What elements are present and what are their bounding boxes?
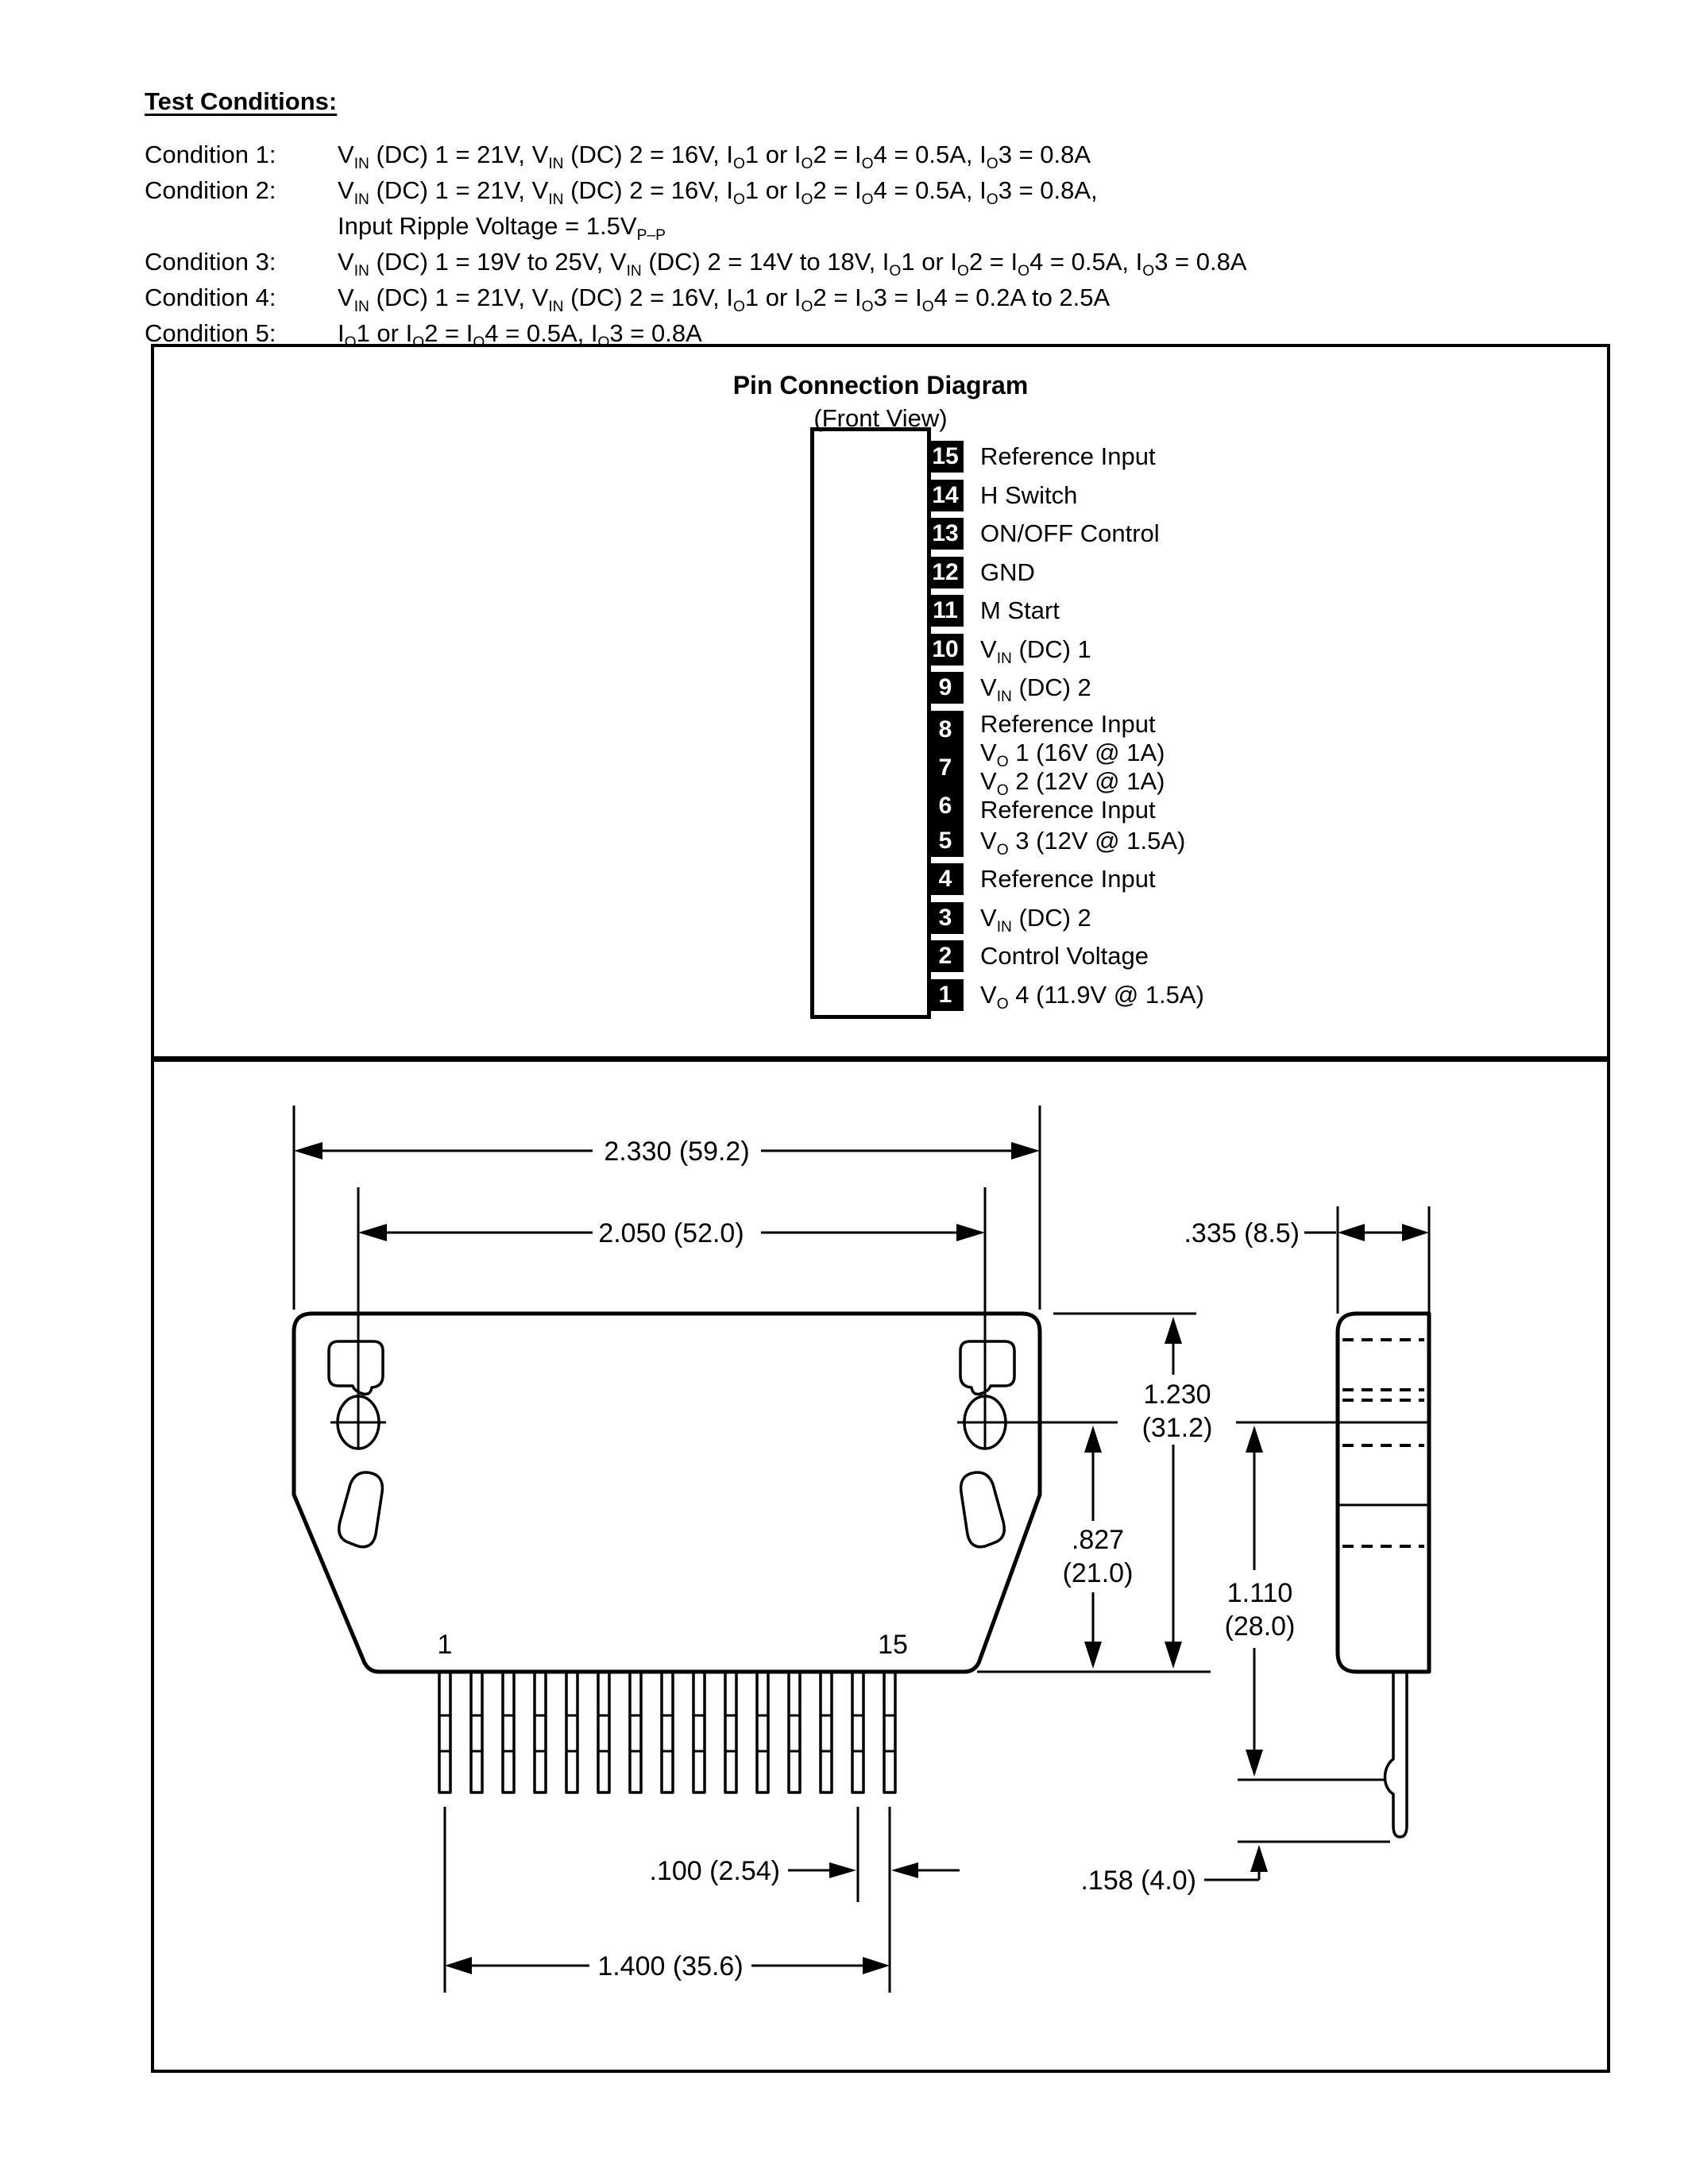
arrowhead-right xyxy=(956,1224,985,1241)
dim-hole-to-pin-end-mm: (28.0) xyxy=(1225,1611,1296,1642)
package-dimensions-panel: 1 15 xyxy=(151,1059,1610,2073)
condition-text-line: VIN (DC) 1 = 21V, VIN (DC) 2 = 16V, IO1 … xyxy=(338,280,1574,315)
dim-overall-width: 2.330 (59.2) xyxy=(604,1136,749,1167)
front-view-pin xyxy=(439,1672,450,1792)
pin-number: 6 xyxy=(939,793,952,820)
pin-label: GND xyxy=(980,558,1035,588)
pin-label: Control Voltage xyxy=(980,941,1149,971)
test-condition-row: Condition 4: VIN (DC) 1 = 21V, VIN (DC) … xyxy=(145,280,1574,315)
test-condition-row: Condition 2: VIN (DC) 1 = 21V, VIN (DC) … xyxy=(145,172,1574,244)
pin-number-box: 14 xyxy=(927,480,964,511)
pin-label: VIN (DC) 2 xyxy=(980,673,1091,703)
pin-diagram-title: Pin Connection Diagram xyxy=(154,371,1607,400)
pin-number-box: 11 xyxy=(927,595,964,627)
front-view-pin xyxy=(757,1672,768,1792)
pin-number: 2 xyxy=(939,943,952,970)
arrowhead-down xyxy=(1165,1642,1182,1669)
front-view-pin xyxy=(852,1672,863,1792)
pin-label: Reference Input xyxy=(980,795,1156,825)
package-outline xyxy=(810,427,931,1019)
pin-number-box: 7 xyxy=(927,749,964,787)
front-view-pin15-number: 15 xyxy=(878,1630,908,1660)
front-view-pin xyxy=(662,1672,673,1792)
left-top-slot xyxy=(329,1341,383,1394)
dimension-drawing: 1 15 xyxy=(154,1062,1607,2070)
test-condition-row: Condition 1: VIN (DC) 1 = 21V, VIN (DC) … xyxy=(145,137,1574,172)
pin-number: 1 xyxy=(939,982,952,1009)
arrowhead-down xyxy=(1246,1750,1263,1777)
arrowhead-left xyxy=(1338,1224,1365,1241)
pin-label: VO 2 (12V @ 1A) xyxy=(980,766,1165,797)
right-top-slot xyxy=(960,1341,1014,1394)
condition-label: Condition 4: xyxy=(145,280,338,315)
right-lower-slot xyxy=(961,1472,1005,1547)
pin-connection-diagram-panel: Pin Connection Diagram (Front View) 15 R… xyxy=(151,344,1610,1059)
front-view-pin xyxy=(821,1672,832,1792)
condition-text-line: VIN (DC) 1 = 19V to 25V, VIN (DC) 2 = 14… xyxy=(338,244,1574,280)
pin-label: VO 3 (12V @ 1.5A) xyxy=(980,826,1185,856)
pin-number-box: 12 xyxy=(927,557,964,588)
pin-label: Reference Input xyxy=(980,442,1156,472)
arrowhead-up xyxy=(1246,1426,1263,1453)
front-view-pin xyxy=(884,1672,895,1792)
pin-label: VIN (DC) 1 xyxy=(980,635,1091,665)
front-view-pin1-number: 1 xyxy=(438,1630,453,1660)
front-view-pin xyxy=(566,1672,577,1792)
dim-hole-to-pin-end-in: 1.110 xyxy=(1227,1578,1293,1608)
pin-label: Reference Input xyxy=(980,864,1156,894)
dim-hole-to-base-in: .827 xyxy=(1072,1525,1124,1555)
pin-number: 13 xyxy=(932,520,958,547)
left-lower-slot xyxy=(339,1472,383,1547)
front-view-pin-comb xyxy=(439,1672,895,1792)
pin-number: 4 xyxy=(939,866,952,893)
dim-pin-pitch: .100 (2.54) xyxy=(650,1856,780,1886)
front-view-pin xyxy=(598,1672,609,1792)
pin-number-box: 1 xyxy=(927,979,964,1011)
pin-label: ON/OFF Control xyxy=(980,519,1160,549)
pin-number: 10 xyxy=(932,636,958,663)
test-conditions-title: Test Conditions: xyxy=(145,87,1574,116)
pin-number: 15 xyxy=(932,443,958,470)
pin-label: VO 1 (16V @ 1A) xyxy=(980,738,1165,768)
pin-number-box: 13 xyxy=(927,518,964,550)
condition-text: VIN (DC) 1 = 21V, VIN (DC) 2 = 16V, IO1 … xyxy=(338,280,1574,315)
side-view-pin xyxy=(1385,1672,1408,1837)
pin-number-box: 5 xyxy=(927,825,964,857)
pin-number-box: 3 xyxy=(927,902,964,934)
front-view-pin xyxy=(630,1672,641,1792)
arrowhead-left xyxy=(445,1957,472,1974)
test-conditions-list: Condition 1: VIN (DC) 1 = 21V, VIN (DC) … xyxy=(145,137,1574,351)
pin-label: Reference Input xyxy=(980,709,1156,739)
pin-number: 5 xyxy=(939,828,952,855)
package-front-outline xyxy=(294,1314,1040,1672)
condition-label: Condition 1: xyxy=(145,137,338,172)
pin-number: 12 xyxy=(932,559,958,586)
arrowhead-up xyxy=(1165,1317,1182,1344)
pin-number-box: 9 xyxy=(927,672,964,704)
front-view-pin xyxy=(535,1672,546,1792)
condition-label: Condition 2: xyxy=(145,172,338,244)
package-side-outline xyxy=(1338,1314,1429,1672)
condition-text-line: VIN (DC) 1 = 21V, VIN (DC) 2 = 16V, IO1 … xyxy=(338,172,1574,208)
pin-label: H Switch xyxy=(980,480,1077,511)
dim-pin-tip-length: .158 (4.0) xyxy=(1080,1866,1196,1896)
condition-label: Condition 3: xyxy=(145,244,338,280)
pin-number: 3 xyxy=(939,905,952,932)
arrowhead-up xyxy=(1084,1426,1102,1453)
pin-number-box: 10 xyxy=(927,634,964,666)
arrowhead-left xyxy=(358,1224,387,1241)
condition-text: VIN (DC) 1 = 21V, VIN (DC) 2 = 16V, IO1 … xyxy=(338,172,1574,244)
arrowhead-right xyxy=(1402,1224,1429,1241)
arrowhead-right xyxy=(829,1862,856,1878)
pin-number: 14 xyxy=(932,482,958,509)
arrowhead-left xyxy=(891,1862,918,1878)
front-view-pin xyxy=(725,1672,736,1792)
pin-number-box: 15 xyxy=(927,441,964,473)
dim-depth: .335 (8.5) xyxy=(1184,1218,1300,1248)
pin-number-box: 2 xyxy=(927,940,964,972)
pin-label: M Start xyxy=(980,596,1060,626)
pin-number-box: 6 xyxy=(927,787,964,825)
condition-text: VIN (DC) 1 = 21V, VIN (DC) 2 = 16V, IO1 … xyxy=(338,137,1574,172)
condition-text: VIN (DC) 1 = 19V to 25V, VIN (DC) 2 = 14… xyxy=(338,244,1574,280)
dim-overall-height-in: 1.230 xyxy=(1143,1379,1211,1410)
arrowhead-right xyxy=(1011,1142,1040,1160)
arrowhead-right xyxy=(863,1957,890,1974)
pin-number: 11 xyxy=(933,597,958,624)
condition-text-line: VIN (DC) 1 = 21V, VIN (DC) 2 = 16V, IO1 … xyxy=(338,137,1574,172)
condition-text-line: Input Ripple Voltage = 1.5VP–P xyxy=(338,208,1574,244)
test-condition-row: Condition 3: VIN (DC) 1 = 19V to 25V, VI… xyxy=(145,244,1574,280)
front-view-pin xyxy=(503,1672,514,1792)
front-view-pin xyxy=(693,1672,705,1792)
arrowhead-down xyxy=(1084,1642,1102,1669)
dim-overall-height-mm: (31.2) xyxy=(1142,1413,1213,1443)
arrowhead-left xyxy=(294,1142,323,1160)
front-view-pin xyxy=(471,1672,482,1792)
test-conditions-section: Test Conditions: Condition 1: VIN (DC) 1… xyxy=(145,87,1574,351)
pin-number: 7 xyxy=(939,754,952,781)
datasheet-page: Test Conditions: Condition 1: VIN (DC) 1… xyxy=(0,0,1688,2184)
pin-number: 8 xyxy=(939,716,952,743)
dim-hole-span: 2.050 (52.0) xyxy=(598,1218,744,1248)
front-view-pin xyxy=(789,1672,800,1792)
pin-number: 9 xyxy=(939,674,952,701)
pin-number-box: 8 xyxy=(927,711,964,749)
dim-pin-row-span: 1.400 (35.6) xyxy=(597,1951,743,1981)
dim-hole-to-base-mm: (21.0) xyxy=(1063,1558,1134,1588)
arrowhead-up xyxy=(1250,1845,1268,1872)
pin-label: VO 4 (11.9V @ 1.5A) xyxy=(980,980,1204,1010)
pin-label: VIN (DC) 2 xyxy=(980,903,1091,933)
pin-number-box: 4 xyxy=(927,863,964,895)
